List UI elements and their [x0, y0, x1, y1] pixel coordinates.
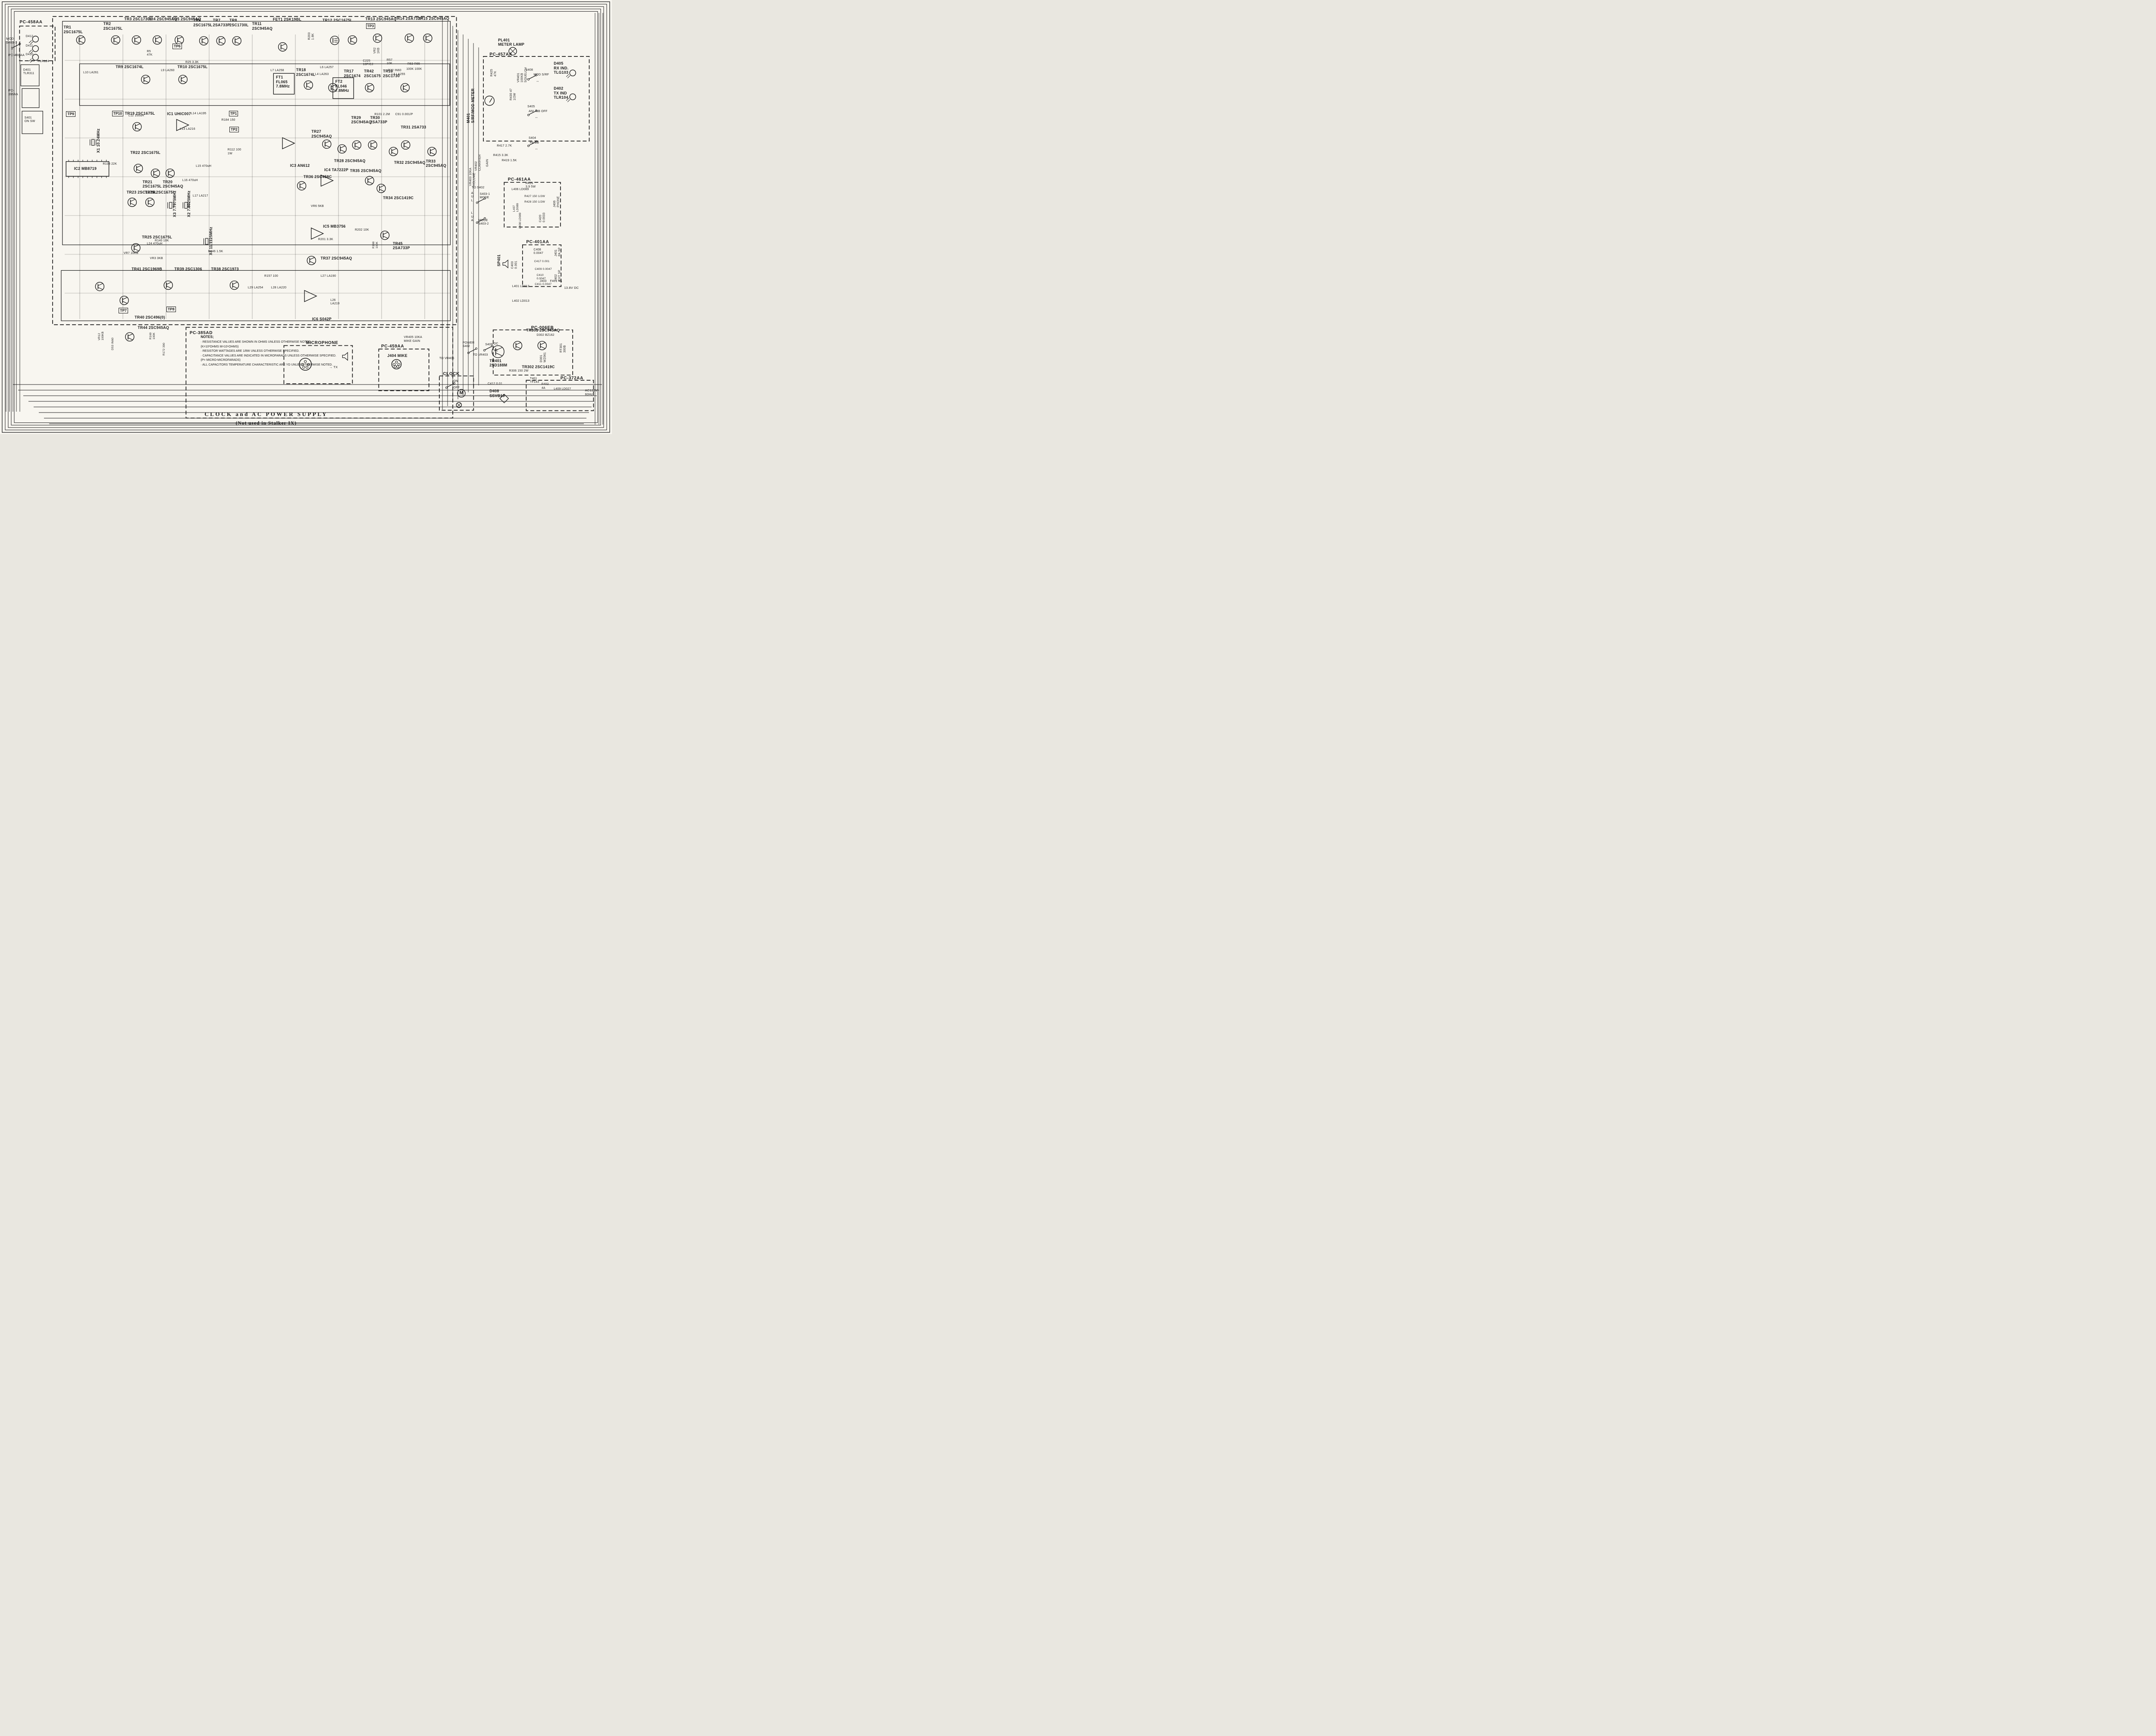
testpoint-tp8: TP8: [166, 307, 176, 312]
label-r415: R415 3.3K: [493, 154, 508, 157]
component-label-tr302: TR302 2SC1419C: [522, 365, 555, 369]
label-vr6: VR6 5KB: [311, 205, 324, 208]
label-r198: R198 100K: [372, 241, 379, 248]
component-label-tr13: TR13 2SC945AQ: [365, 17, 397, 22]
label-power: POWER S402: [463, 341, 474, 349]
label-mode: MODE S403-2: [479, 219, 489, 226]
label-c409: C409 0.0047: [535, 268, 552, 271]
component-label-tr11: TR11 2SC945AQ: [252, 22, 273, 31]
label-r203: R203 1.8K: [308, 32, 315, 40]
label-l13: L13 LA216: [180, 128, 195, 131]
label-100k: 100K 100K: [406, 68, 422, 71]
label-l14: L14 LA195: [191, 112, 207, 116]
component-label-tr40: TR40 2SC496(0): [135, 315, 165, 320]
label-d412: D412: [26, 35, 34, 38]
label-c420: C420 0.0033: [539, 213, 546, 222]
notes-block: NOTES; · RESISTANCE VALUES ARE SHOWN IN …: [201, 335, 378, 367]
component-label-tr42: TR42 2SC1675: [364, 69, 381, 78]
label-s403-1: S403-1 MODE: [479, 193, 490, 200]
component-label-ic6: IC6 S042P: [312, 317, 332, 322]
schematic-page: PC-458AAPC-457AAPC-461AAPC-401AAPC-459AA…: [0, 0, 612, 434]
label-l10: L10 LA261: [83, 71, 99, 75]
label-l28: L28 LA220: [271, 286, 287, 290]
label-vr2: VR2 1KB: [373, 47, 381, 53]
board-label-pc-372aa: PC-372AA: [561, 376, 583, 381]
label-r146: R146 1.5K: [208, 250, 223, 253]
label-vr405: VR405 10KA MIKE GAIN: [404, 336, 422, 343]
label-to: TO S402: [472, 186, 484, 190]
label-t401: T401 TF143: [530, 377, 539, 385]
label-pc-: PC- 395AA: [9, 89, 18, 97]
label-r172: R172 390: [163, 343, 166, 356]
component-label-d402: D402 TX IND TLR104: [554, 86, 568, 100]
component-label-tr25: TR25 2SC1675L: [142, 235, 172, 240]
label-j406: J406 PHONE: [553, 196, 561, 207]
label-to: TO VR403: [473, 353, 488, 357]
component-label-tr24: TR24 2SC1675L: [145, 190, 175, 195]
label-d301: D301 WZ061: [540, 352, 547, 363]
label-mod: MOD S/RF: [533, 73, 549, 77]
component-label-tr37: TR37 2SC945AQ: [321, 256, 352, 261]
note-item-4: · ALL CAPACITORS TEMPERATURE CHARACTERIS…: [201, 363, 378, 368]
testpoint-tp10: TP10: [112, 111, 123, 116]
component-label-tr31: TR31 2SA733: [401, 125, 426, 130]
component-label-tr17: TR17 2SC1674: [344, 69, 360, 78]
component-label-ic5: IC5 MB3756: [323, 224, 345, 229]
label-l4: L4 LA263: [315, 73, 329, 76]
component-label-sp401: SP401: [497, 254, 501, 266]
label-d302: D302 BZ162: [536, 334, 554, 337]
label-l7: L7 LA258: [270, 69, 284, 72]
label-l402: L402 LD013: [512, 300, 530, 303]
component-label-tr27: TR27 2SC945AQ: [311, 129, 332, 138]
label-vr3: VR3 3KB: [150, 257, 163, 260]
component-label-tr9: TR9 2SC1674L: [116, 65, 144, 69]
label-off: OFF: [453, 386, 460, 390]
label-a: A U L: [471, 192, 473, 203]
label-j401: J401 PA SP: [555, 247, 562, 256]
label-s409: S409: [485, 343, 492, 347]
component-label-tr44: TR44 2SC945AQ: [138, 325, 169, 330]
component-label-tr45: TR45 2SA733P: [393, 241, 410, 250]
label-l3: L3 LA255: [392, 73, 405, 76]
component-label-ic1: IC1 UHIC007: [167, 112, 191, 116]
component-label-tr10: TR10 2SC1675L: [178, 65, 208, 69]
label-l: L U A: [471, 212, 473, 222]
label-r57: R57 10K: [387, 59, 392, 66]
label-l6: L6 LA257: [320, 66, 334, 69]
notes-list: · RESISTANCE VALUES ARE SHOWN IN OHMS UN…: [201, 340, 378, 367]
label-vr12: VR12 100KB: [98, 332, 105, 341]
component-label-x1: X1 10.24MHz: [96, 128, 101, 153]
label-r419: R419 1.5K: [502, 159, 517, 163]
board-label-pc-457aa: PC-457AA: [489, 52, 512, 57]
label-↔: ↔: [535, 147, 538, 150]
component-label-tr18: TR18 2SC1674L: [296, 68, 315, 77]
label-d53: D53 IN60: [111, 338, 115, 350]
label-r63: R63 R65: [407, 63, 420, 66]
component-label-ic2: IC2 MB8719: [74, 166, 97, 171]
label-mod: MOD S403-3: [6, 37, 17, 44]
note-item-3: · CAPACITANCE VALUES ARE INDICATED IN MI…: [201, 354, 378, 363]
component-label-tr29: TR29 2SC945AQ: [351, 116, 372, 125]
label-pc-460aa: PC-460AA: [9, 53, 25, 57]
component-label-d408: D408 SSVB10: [489, 389, 505, 398]
label-l29: L29 LA254: [248, 286, 263, 290]
label-r306: R306 150 2W: [509, 369, 529, 373]
board-label-pc-458aa: PC-458AA: [19, 20, 42, 25]
component-label-ft2: FT2 FL046 7.8MHz: [335, 79, 349, 93]
label-d401: D401 TLR311: [23, 69, 34, 76]
label-l408: L408 LD089: [519, 213, 522, 228]
label-r430: R430 47 1/2W: [510, 88, 517, 100]
notes-heading: NOTES;: [201, 335, 378, 339]
component-label-ic4: IC4 TA7222P: [324, 168, 348, 172]
label-l12: L12 100uH: [128, 114, 144, 118]
label-c408: C408 0.0047: [533, 248, 543, 256]
component-label-fet1: FET1 2SK19BL: [273, 17, 301, 22]
component-label-j404: J404 MIKE: [387, 353, 407, 358]
label-d22: D22 IN60: [388, 69, 401, 72]
component-label-tr22: TR22 2SC1675L: [130, 150, 160, 155]
component-label-tr39: TR39 2SC1306: [174, 267, 202, 272]
component-label-tr12: TR12 2SC1675L: [323, 18, 353, 23]
component-label-tr20: TR20 2SC945AQ: [163, 180, 183, 189]
label-j403: J403: [540, 280, 547, 283]
label-gain: GAIN: [486, 159, 489, 167]
label-r426: R426 3.9 5W: [526, 182, 536, 189]
component-label-tr301: TR301 2SC945AQ: [526, 328, 560, 333]
component-label-tr41: TR41 2SC1969B: [132, 267, 162, 272]
component-label-tr35: TR35 2SC945AQ: [350, 169, 382, 173]
label-c91: C91 0.001/P: [395, 113, 413, 116]
label-13.8v: 13.8V DC: [564, 286, 579, 290]
component-label-tr7: TR7 2SA733P: [213, 18, 230, 27]
component-label-tr34: TR34 2SC1419C: [383, 196, 414, 200]
label-r427: R427 150 1/2W: [524, 195, 545, 198]
component-label-d405: D405 RX IND. TLG103: [554, 61, 568, 75]
component-label-m: M: [459, 391, 463, 396]
label-r169: R169 100K: [149, 332, 156, 339]
label-c225: C225 10P/CJ: [363, 59, 373, 67]
component-label-ft1: FT1 FL065 7.8MHz: [276, 75, 290, 89]
label-c403: C403 0.001: [511, 261, 518, 269]
label-r184: R184 150: [222, 119, 235, 122]
label-↔: ↔: [535, 115, 538, 119]
label-dc: DC: [494, 342, 498, 346]
component-label-tr38: TR38 2SC1973: [211, 267, 239, 272]
note-item-2: · RESISTOR WATTAGES ARE 1/8W UNLESS OTHE…: [201, 349, 378, 354]
component-label-tr1: TR1 2SC1675L: [64, 25, 83, 34]
label-r417: R417 2.7K: [497, 144, 512, 148]
label-to: TO VR405: [439, 357, 454, 360]
label-s405: S405: [527, 105, 535, 109]
component-label-tr6: TR6 2SC1675L: [193, 18, 212, 27]
component-label-tr8: TR8 2SC1730L: [229, 18, 248, 27]
testpoint-tp1: TP1: [229, 111, 238, 116]
label-f402: F402 4A: [542, 383, 549, 390]
label-r112: R112 100 1W: [228, 148, 241, 156]
label-r108: R108 22K: [103, 163, 117, 166]
component-label-tr2: TR2 2SC1675L: [103, 22, 122, 31]
component-label-tr401: TR401 2SD188M: [489, 359, 507, 368]
label-r25: R25 3.3K: [185, 61, 199, 64]
schematic-title: CLOCK and AC POWER SUPPLY: [204, 411, 328, 418]
component-label-ic3: IC3 AN612: [290, 163, 310, 168]
label-ac: AC: [494, 349, 498, 353]
component-label-tr33: TR33 2SC945AQ: [426, 159, 446, 168]
label-vr7: VR7 10KB: [124, 252, 138, 255]
label-tlr124: TLR124: [38, 60, 49, 63]
label-anl·nb: ANL·NB OFF: [529, 110, 548, 113]
component-label-tr15: TR15 2SC945AQ: [418, 16, 449, 21]
label-s408: S408: [526, 69, 533, 72]
label-s404: S404: [529, 137, 536, 140]
label-ac120v: AC120V 60Hz: [585, 388, 598, 396]
component-label-x3: X3 7.7975MHz: [172, 191, 177, 217]
component-label-pl401: PL401 METER LAMP: [498, 38, 524, 47]
label-l401: L401 LD013: [512, 285, 530, 288]
label-↔: ↔: [536, 79, 539, 83]
testpoint-tp9: TP9: [66, 111, 75, 117]
note-item-1: · RESISTANCE VALUES ARE SHOWN IN OHMS UN…: [201, 340, 378, 349]
label-on: ON: [453, 380, 458, 383]
board-label-clock: CLOCK: [443, 372, 460, 376]
label-s401: S401 ON SW: [25, 116, 35, 124]
testpoint-tp3: TP3: [366, 23, 376, 29]
component-label-x2: X2 7.8025MHz: [187, 191, 191, 217]
label-c417: C417 0.001: [534, 260, 550, 263]
label-l26: L26 LA219: [330, 299, 339, 306]
component-label-tr30: TR30 2SA733P: [370, 116, 387, 125]
label-l15: L15 470uH: [196, 165, 211, 168]
board-label-pc-401aa: PC-401AA: [526, 240, 549, 244]
testpoint-tp2: TP2: [229, 127, 239, 132]
label-d411: D411: [26, 44, 33, 48]
label-vr402: VR402 CLARIFIER: [475, 154, 482, 171]
label-l16: L16 470uH: [182, 179, 198, 182]
label-r101: R101 2.2M: [374, 113, 390, 116]
label-f401: F401 4A: [550, 280, 562, 283]
testpoint-tp6: TP6: [172, 44, 182, 49]
label-rt301: RT301 300B: [560, 343, 567, 353]
label-r5: R5 47K: [147, 50, 153, 57]
label-pa: PA CB: [530, 141, 539, 145]
component-label-tr28: TR28 2SC945AQ: [334, 159, 366, 163]
label-c412: C412 0.01: [488, 382, 502, 386]
testpoint-tp7: TP7: [119, 308, 128, 313]
component-label-m401: M401 S/RF/MOD METER: [466, 88, 475, 123]
label-l27: L27 LA190: [321, 275, 336, 278]
component-label-tr21: TR21 2SC1675L: [143, 180, 162, 189]
label-r140: R140 10K: [155, 239, 169, 243]
label-l9: L9 LA260: [161, 69, 175, 72]
label-l17: L17 LA217: [193, 194, 208, 198]
board-label-pc-461aa: PC-461AA: [508, 177, 531, 182]
component-label-tr36: TR36 2SC458C: [304, 175, 332, 179]
schematic-subtitle: (Not used in Stalker IX): [236, 421, 297, 426]
label-l407: L407 LD089: [513, 203, 520, 212]
board-label-pc-459aa: PC-459AA: [381, 344, 404, 349]
label-l409: L409 LD027: [554, 388, 571, 391]
label-r201: R201 3.3K: [318, 238, 333, 241]
label-r157: R157 100: [264, 275, 278, 278]
component-label-tr32: TR32 2SC945AQ: [394, 160, 426, 165]
label-r202: R202 10K: [355, 228, 369, 232]
label-d410: D410: [26, 53, 34, 56]
label-r425: R425 47K: [490, 69, 498, 77]
label-r428: R428 150 1/2W: [524, 200, 545, 204]
